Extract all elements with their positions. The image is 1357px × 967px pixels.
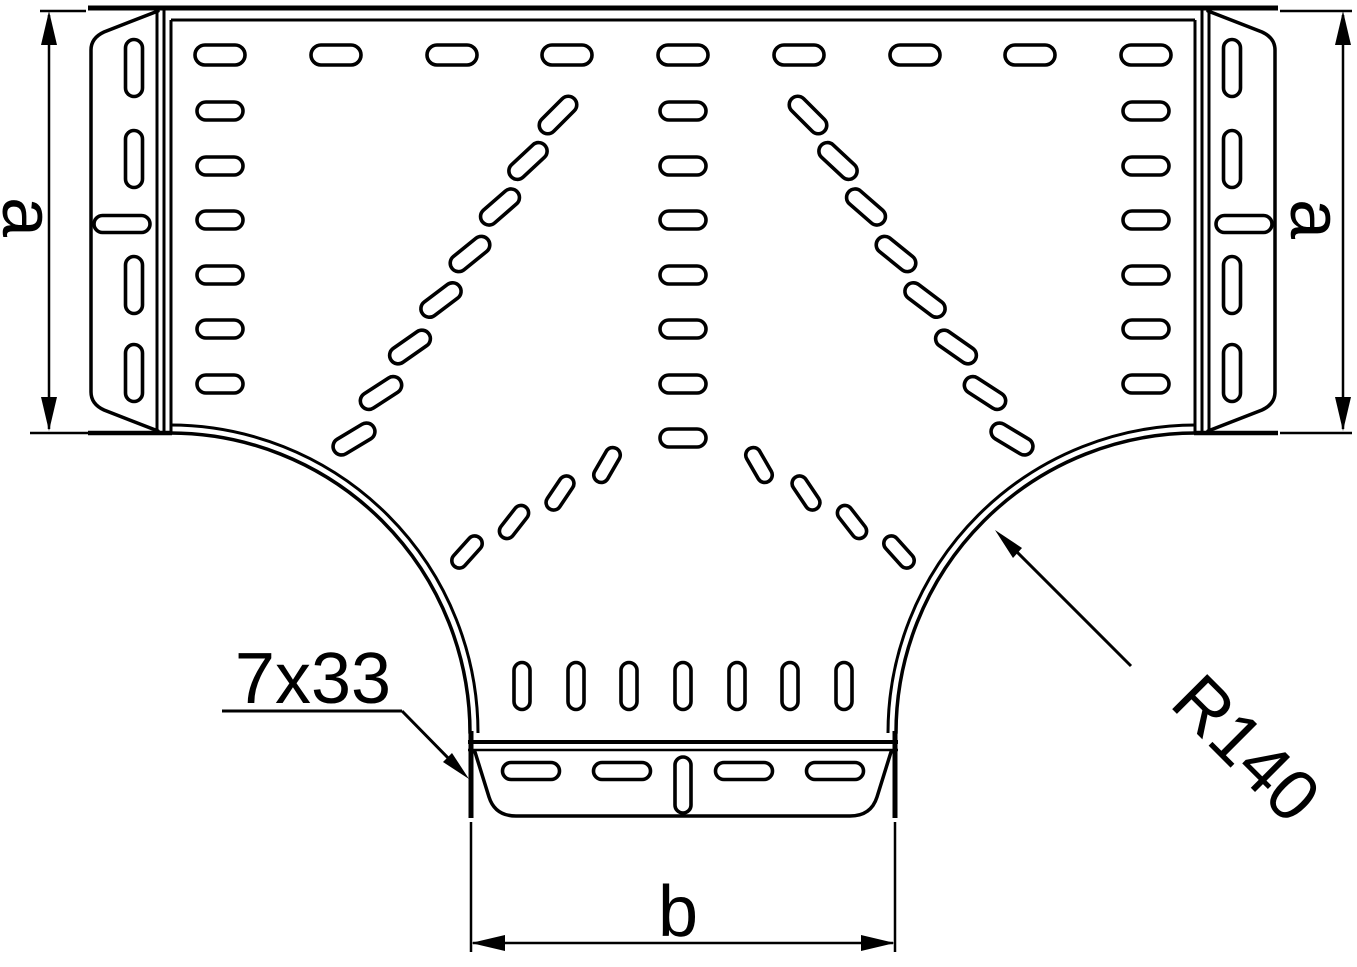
perforation-slot (386, 327, 433, 367)
perforation-slot (536, 93, 581, 138)
perforation-slot (594, 763, 651, 780)
perforation-slot (932, 327, 979, 367)
perforation-slot (1121, 45, 1171, 65)
perforation-slot (357, 373, 405, 412)
perforation-slot (1123, 102, 1169, 120)
perforation-slot (1123, 157, 1169, 175)
arrow-up-icon (1335, 11, 1351, 45)
technical-drawing-svg: a a b 7x33 R140 (0, 0, 1357, 967)
perforation-slot (514, 663, 530, 710)
perforation-slot (836, 663, 852, 710)
perforation-slot (505, 139, 550, 183)
perforation-slot (807, 763, 864, 780)
leader-line (402, 711, 455, 765)
perforation-slot (496, 502, 531, 541)
perforation-slot (675, 663, 691, 710)
dimension-a-right-label: a (1275, 199, 1355, 240)
dimension-a-left-label: a (0, 197, 67, 238)
perforation-slot (961, 373, 1009, 412)
perforation-slot (94, 216, 150, 233)
perforation-slot (591, 445, 623, 485)
radius-leader-line (1009, 544, 1131, 666)
perforation-slot (126, 345, 143, 402)
perforation-slot (815, 139, 860, 183)
perforation-slot (729, 663, 745, 710)
perforation-slot (1123, 211, 1169, 229)
dimension-b-label: b (658, 872, 698, 952)
slot-note-label: 7x33 (235, 639, 391, 719)
perforation-slot (786, 93, 831, 138)
perforation-slot (873, 233, 919, 275)
perforation-slot (890, 45, 940, 65)
perforation-slot (881, 533, 918, 571)
perforation-slot (1123, 320, 1169, 338)
perforation-slot (660, 157, 706, 175)
perforation-slot (126, 257, 143, 314)
perforation-slot (1224, 40, 1241, 97)
perforation-slot (418, 279, 465, 320)
perforation-slot (660, 266, 706, 284)
perforation-slot (789, 473, 823, 513)
perforation-slot (660, 320, 706, 338)
perforation-slot (197, 211, 243, 229)
perforation-slot (311, 45, 361, 65)
perforation-slot (1224, 131, 1241, 188)
perforation-slot (447, 233, 493, 275)
perforation-slot (197, 266, 243, 284)
perforation-slot (658, 45, 708, 65)
perforation-slot (660, 211, 706, 229)
perforation-slot (542, 45, 592, 65)
perforation-slot (197, 375, 243, 393)
perforation-slot (621, 663, 637, 710)
perforation-slot (743, 445, 775, 485)
perforation-slot (774, 45, 824, 65)
perforation-slot (543, 473, 577, 513)
slot-note-7x33: 7x33 (222, 639, 469, 779)
perforation-slot (197, 157, 243, 175)
perforation-slot (197, 102, 243, 120)
perforation-slot (902, 279, 949, 320)
perforation-slot (782, 663, 798, 710)
perforation-slot (126, 131, 143, 188)
perforation-slot (843, 185, 889, 228)
perforation-slot (1005, 45, 1055, 65)
perforation-slot (1224, 345, 1241, 402)
perforation-slot (1224, 257, 1241, 314)
perforation-slot (197, 320, 243, 338)
perforation-slot (449, 533, 486, 571)
perforation-slot (716, 763, 773, 780)
arrow-up-icon (41, 11, 57, 45)
perforation-slot (568, 663, 584, 710)
perforation-slot (427, 45, 477, 65)
perforation-slot (660, 102, 706, 120)
perforation-slot (1123, 375, 1169, 393)
dimension-a-right: a (1275, 11, 1355, 433)
arrow-down-icon (1335, 397, 1351, 431)
perforation-slot (126, 40, 143, 97)
perforation-slot (330, 420, 378, 458)
arrow-down-icon (41, 397, 57, 431)
perforation-slot (503, 763, 560, 780)
perforation-slot (1216, 216, 1272, 233)
perforation-slot (988, 420, 1036, 458)
perforation-slot (195, 45, 245, 65)
arrow-right-icon (861, 935, 895, 951)
dimension-a-left: a (0, 11, 94, 433)
radius-note-label: R140 (1157, 660, 1335, 838)
dimension-b: b (471, 822, 895, 952)
perforation-slot (1123, 266, 1169, 284)
perforation-slot (477, 185, 523, 228)
arrow-left-icon (471, 935, 505, 951)
cable-tray-tee-drawing: a a b 7x33 R140 (0, 0, 1357, 967)
radius-note-r140: R140 (995, 530, 1335, 838)
perforation-slot (675, 757, 691, 813)
perforation-slot (834, 502, 869, 541)
perforation-slot (660, 375, 706, 393)
perforation-slot (660, 429, 706, 447)
